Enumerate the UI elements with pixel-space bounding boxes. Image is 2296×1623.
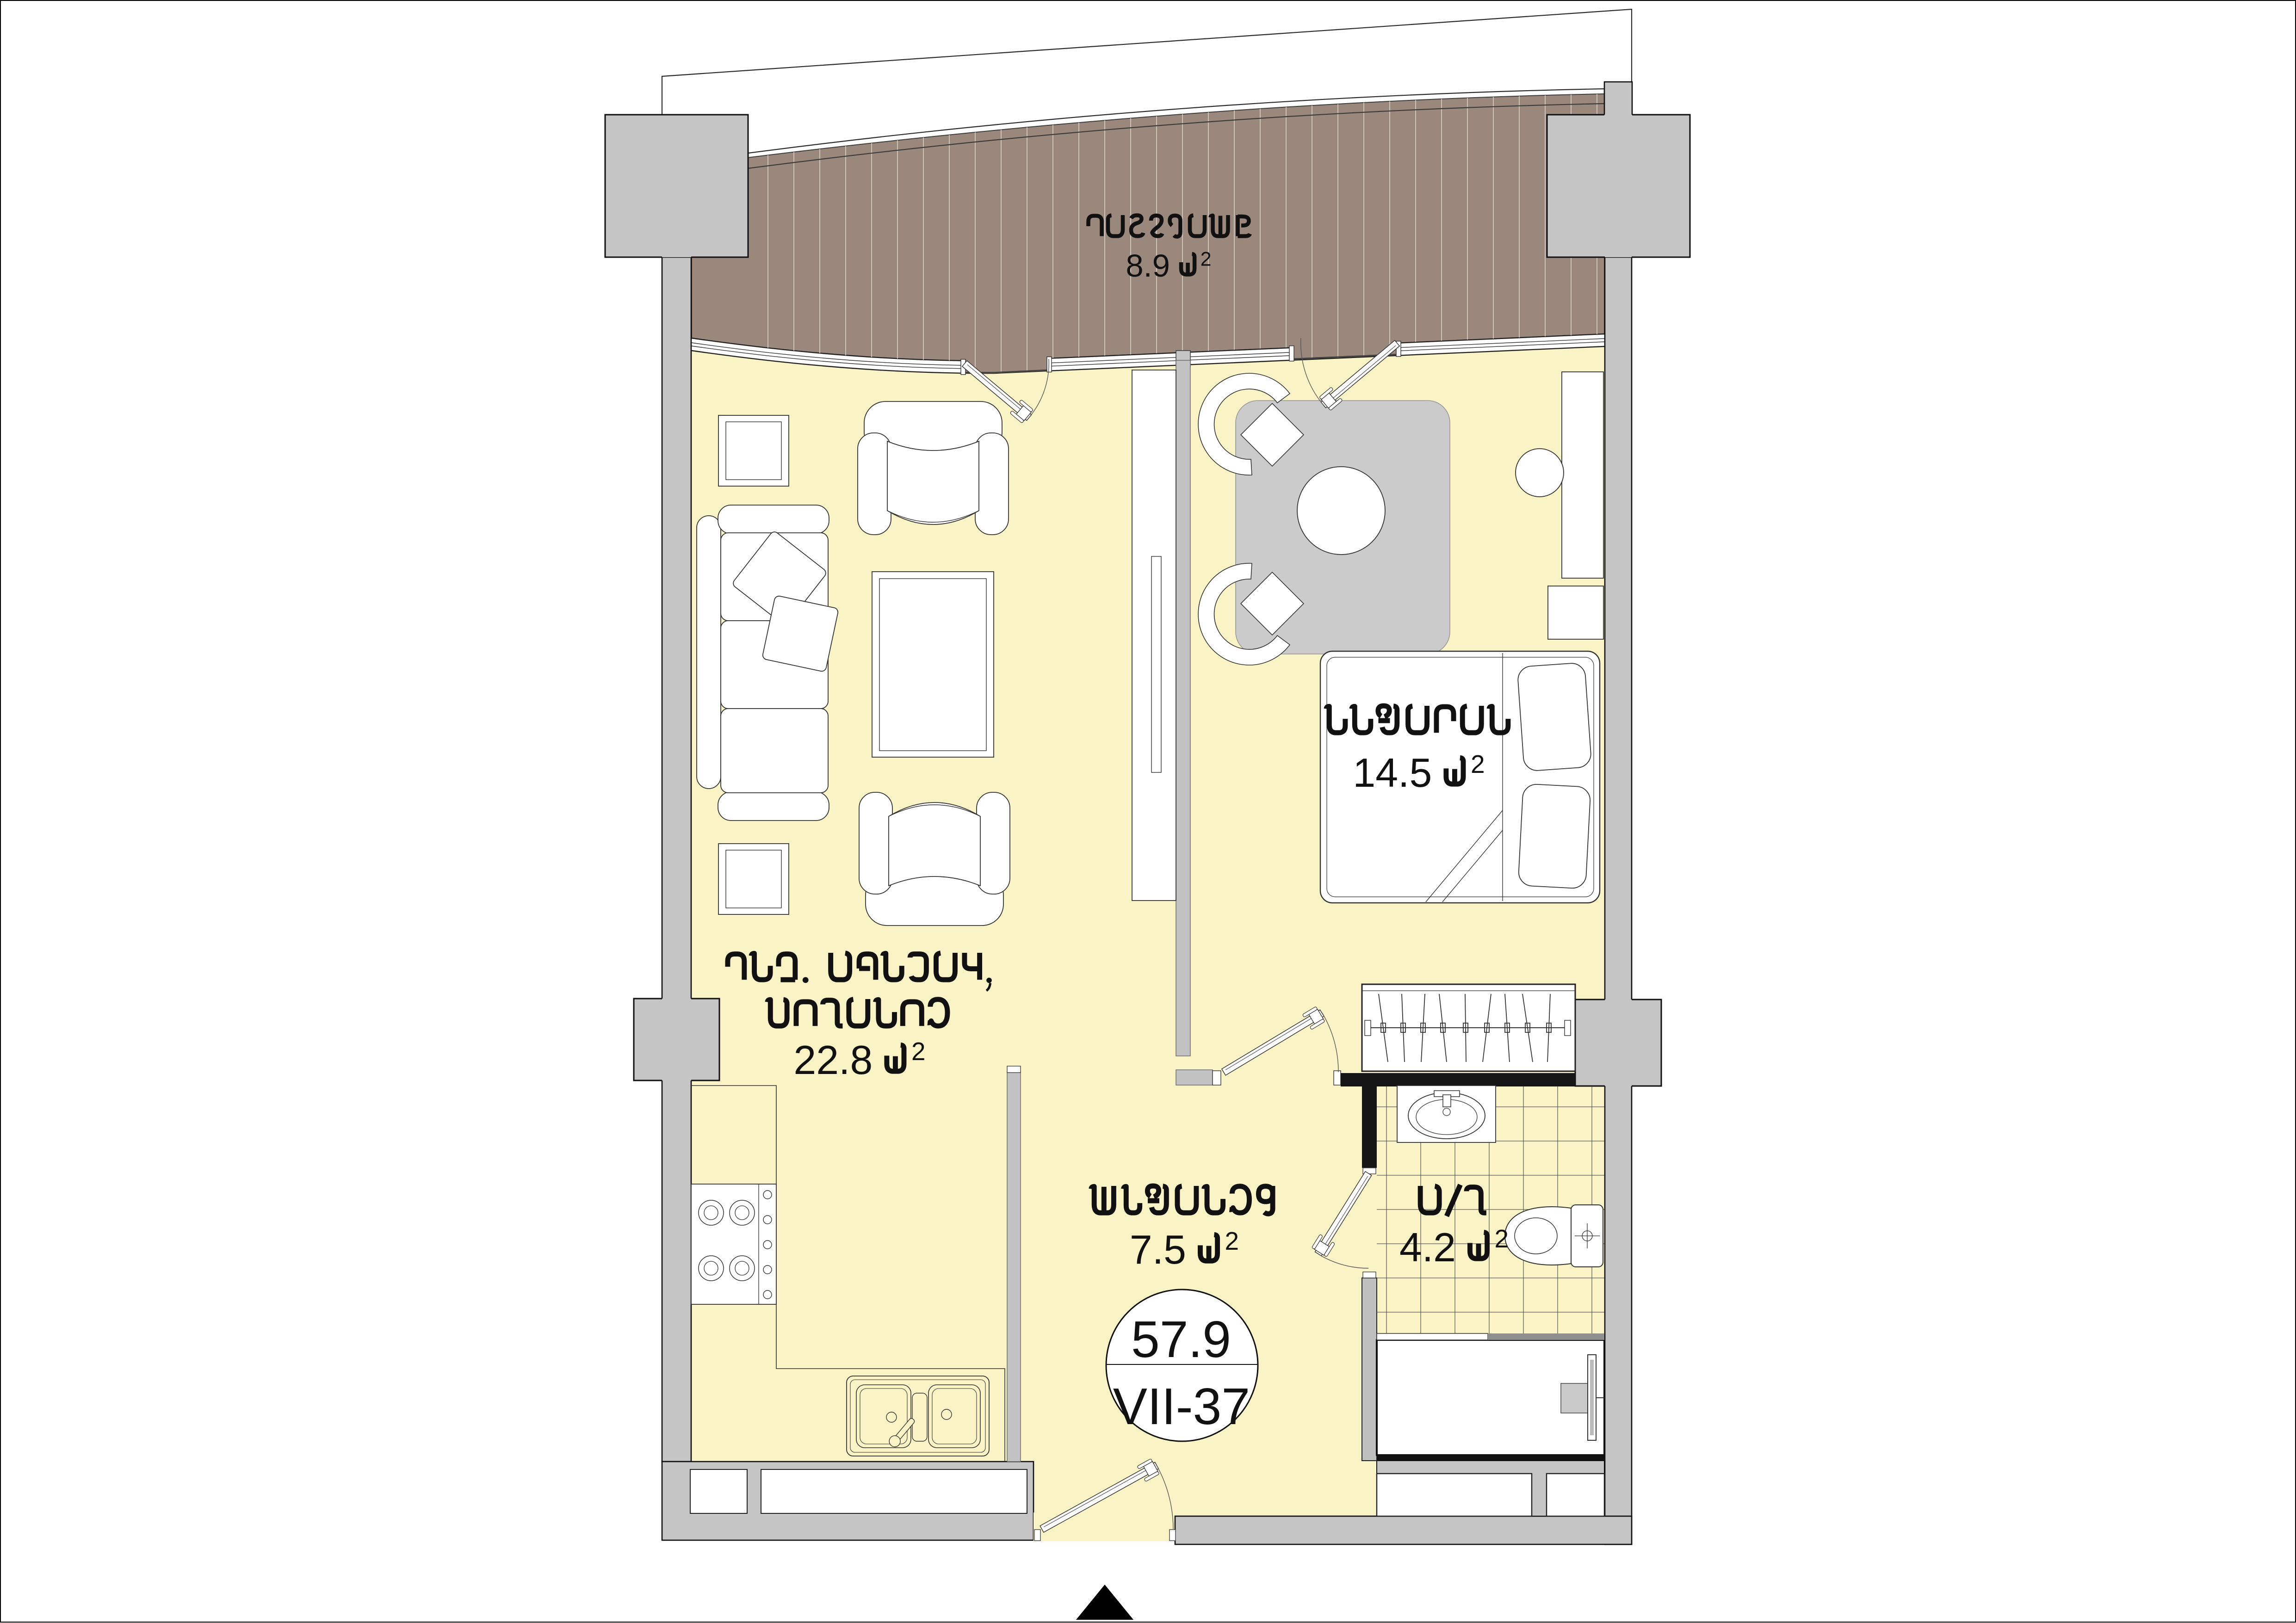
- svg-text:2: 2: [1225, 1227, 1239, 1255]
- svg-text:57.9: 57.9: [1131, 1311, 1231, 1368]
- svg-text:8.9: 8.9: [1126, 248, 1170, 284]
- svg-text:2: 2: [1201, 248, 1212, 271]
- svg-text:7.5: 7.5: [1130, 1227, 1186, 1272]
- svg-text:VII-37: VII-37: [1113, 1378, 1250, 1435]
- svg-text:2: 2: [911, 1037, 926, 1066]
- svg-text:4.2: 4.2: [1399, 1225, 1456, 1270]
- svg-text:2: 2: [1495, 1224, 1509, 1253]
- svg-text:22.8: 22.8: [793, 1037, 873, 1083]
- svg-text:14.5: 14.5: [1353, 750, 1432, 796]
- svg-text:2: 2: [1471, 750, 1485, 778]
